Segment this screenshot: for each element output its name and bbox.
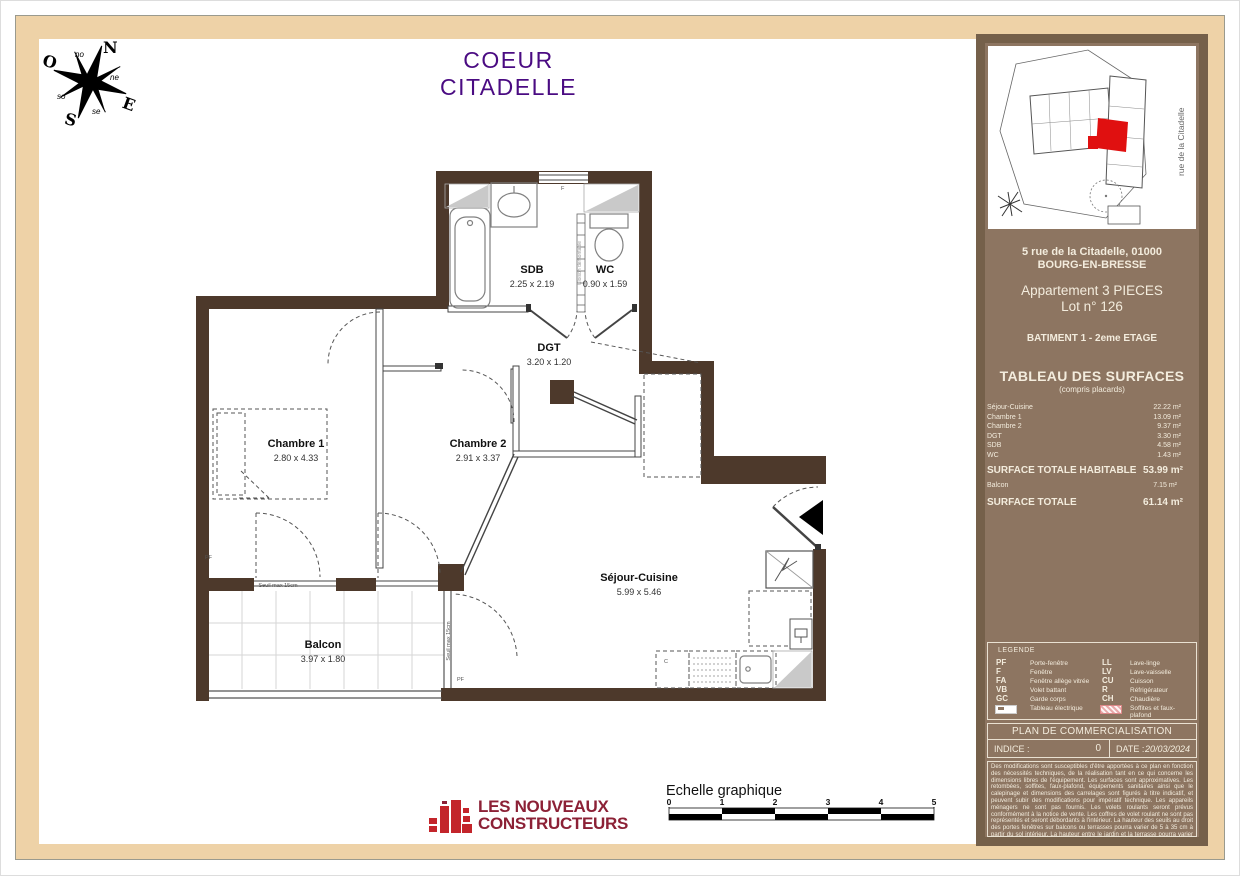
street-name: rue de la Citadelle — [1176, 107, 1186, 176]
frame-band-left — [16, 16, 39, 859]
surface-value: 13.09 m² — [1153, 413, 1181, 423]
compass-label-e: E — [120, 93, 138, 115]
total-habitable-label: SURFACE TOTALE HABITABLE — [987, 465, 1136, 476]
address-line-2: BOURG-EN-BRESSE — [985, 259, 1199, 271]
apartment-type: Appartement 3 PIECES — [985, 283, 1199, 298]
legend-label: Chaudière — [1130, 696, 1160, 703]
room-label-chambre1: Chambre 1 — [268, 438, 325, 450]
window-gap — [539, 172, 588, 183]
highlighted-lot — [1096, 118, 1128, 152]
boiler-closet — [766, 551, 813, 649]
room-dims-dgt: 3.20 x 1.20 — [527, 357, 572, 367]
compass-label-o: O — [41, 51, 59, 73]
surface-label: SDB — [987, 441, 1001, 451]
legend-label: Lave-vaisselle — [1130, 669, 1171, 676]
plan-commercialisation-banner: PLAN DE COMMERCIALISATION — [987, 723, 1197, 740]
compass-arm-e — [88, 77, 127, 98]
exterior-walls — [196, 171, 826, 701]
date-cell: DATE : 20/03/2024 — [1110, 740, 1196, 757]
washbasin-icon — [498, 193, 530, 217]
electrical-column — [550, 380, 574, 404]
legend-label: Lave-linge — [1130, 660, 1160, 667]
floor-plan: SDB 2.25 x 2.19 WC 0.90 x 1.59 DGT 3.20 … — [181, 159, 841, 715]
legend-label: Fenêtre — [1030, 669, 1052, 676]
room-label-wc: WC — [596, 264, 614, 276]
seuil-note-h: Seuil max 15cm — [258, 583, 298, 589]
surface-row: Séjour-Cuisine 22.22 m² — [987, 403, 1181, 413]
legend-abbr: R — [1102, 685, 1108, 694]
legend-label: Volet battant — [1030, 687, 1066, 694]
dishwasher-outline — [689, 651, 736, 688]
legend-label: Cuisson — [1130, 678, 1153, 685]
indice-date-row: INDICE : 0 DATE : 20/03/2024 — [987, 740, 1197, 758]
compass-label-se: se — [92, 107, 101, 116]
room-label-sdb: SDB — [520, 264, 543, 276]
page-title: COEUR CITADELLE — [396, 47, 621, 101]
legend-abbr: F — [996, 667, 1001, 676]
toilet-tank — [590, 214, 628, 228]
building-3-outline — [1108, 206, 1140, 224]
legend-label: Garde corps — [1030, 696, 1066, 703]
scale-tick: 5 — [932, 797, 937, 807]
total-value: 61.14 m² — [1143, 497, 1183, 508]
legend-abbr: LV — [1102, 667, 1112, 676]
compass-label-no: no — [75, 50, 84, 59]
legend-abbr: CH — [1102, 694, 1114, 703]
room-labels: SDB 2.25 x 2.19 WC 0.90 x 1.59 DGT 3.20 … — [268, 264, 678, 664]
surface-row: Chambre 2 9.37 m² — [987, 422, 1181, 432]
date-label: DATE : — [1116, 744, 1144, 754]
indice-cell: INDICE : 0 — [988, 740, 1110, 757]
legend-label: Fenêtre allège vitrée — [1030, 678, 1089, 685]
indice-value: 0 — [1095, 743, 1101, 754]
te-box — [790, 619, 812, 649]
dishwasher-hatch — [693, 658, 732, 682]
legend-label: Tableau électrique — [1030, 705, 1083, 712]
door-leaves — [530, 310, 818, 548]
total-row: SURFACE TOTALE 61.14 m² — [987, 497, 1183, 508]
building-floor: BATIMENT 1 - 2eme ETAGE — [985, 333, 1199, 344]
scale-bar — [669, 807, 934, 820]
room-label-chambre2: Chambre 2 — [450, 438, 507, 450]
surface-row: Chambre 1 13.09 m² — [987, 413, 1181, 423]
room-dims-chambre1: 2.80 x 4.33 — [274, 453, 319, 463]
legend-abbr: LL — [1102, 658, 1112, 667]
legend-label: Porte-fenêtre — [1030, 660, 1068, 667]
room-dims-chambre2: 2.91 x 3.37 — [456, 453, 501, 463]
surface-label: DGT — [987, 432, 1002, 442]
compass-label-ne: ne — [110, 73, 119, 82]
interior-partitions — [376, 306, 641, 568]
diagonal-walls — [461, 392, 637, 575]
address-line-1: 5 rue de la Citadelle, 01000 — [985, 246, 1199, 258]
compass-label-so: so — [57, 92, 66, 101]
legal-disclaimer: Des modifications sont susceptibles d'êt… — [987, 761, 1197, 837]
legend-label: Réfrigérateur — [1130, 687, 1168, 694]
cloison-note: Cloison démontable — [577, 241, 583, 285]
surface-value: 3.30 m² — [1157, 432, 1181, 442]
pillow-outline — [217, 413, 245, 495]
seuil-note-v: Seuil max 15cm — [446, 621, 452, 661]
logo-line-2: CONSTRUCTEURS — [478, 815, 628, 832]
room-label-sejour: Séjour-Cuisine — [600, 572, 678, 584]
balcony-row: Balcon 7.15 m² — [987, 482, 1177, 489]
room-dims-sejour: 5.99 x 5.46 — [617, 587, 662, 597]
compass-rose: N E S O no ne se so — [37, 27, 149, 137]
pf-marker-1: PF — [205, 555, 213, 561]
surface-label: WC — [987, 451, 999, 461]
cooktop-marker: C — [664, 659, 668, 665]
legend-abbr: GC — [996, 694, 1008, 703]
info-sidebar: rue de la Citadelle 5 rue de la Citadell… — [976, 34, 1208, 846]
total-habitable-row: SURFACE TOTALE HABITABLE 53.99 m² — [987, 465, 1183, 476]
total-label: SURFACE TOTALE — [987, 497, 1077, 508]
mini-compass-icon — [998, 192, 1022, 216]
compass-label-n: N — [103, 38, 118, 57]
kitchen-sink-icon — [740, 656, 771, 683]
logo-line-1: LES NOUVEAUX — [478, 798, 628, 815]
constructor-logo-text: LES NOUVEAUX CONSTRUCTEURS — [478, 798, 628, 832]
date-value: 20/03/2024 — [1145, 744, 1190, 754]
room-dims-sdb: 2.25 x 2.19 — [510, 279, 555, 289]
room-label-balcon: Balcon — [305, 639, 342, 651]
scale-tick: 4 — [879, 797, 884, 807]
legend-label: Soffites et faux-plafond — [1130, 705, 1196, 719]
constructor-logo: LES NOUVEAUX CONSTRUCTEURS — [426, 793, 628, 837]
graphic-scale: Echelle graphique 0 1 2 3 4 5 — [663, 781, 943, 826]
toilet-icon — [595, 229, 623, 261]
room-dims-wc: 0.90 x 1.59 — [583, 279, 628, 289]
surface-value: 4.58 m² — [1157, 441, 1181, 451]
surfaces-title: TABLEAU DES SURFACES — [985, 368, 1199, 384]
scale-tick: 2 — [773, 797, 778, 807]
legend-title: LEGENDE — [998, 647, 1035, 654]
surface-label: Chambre 2 — [987, 422, 1022, 432]
plan-page: COEUR CITADELLE N E S O no ne se so — [0, 0, 1240, 876]
indice-label: INDICE : — [994, 744, 1030, 754]
site-plan-thumbnail: rue de la Citadelle — [988, 46, 1196, 229]
windows — [254, 175, 588, 586]
scale-tick: 3 — [826, 797, 831, 807]
legend-box: LEGENDE PF Porte-fenêtre F Fenêtre FA Fe… — [987, 642, 1197, 720]
balcony-value: 7.15 m² — [1153, 482, 1177, 489]
surfaces-subtitle: (compris placards) — [985, 385, 1199, 394]
scale-tick: 0 — [667, 797, 672, 807]
legend-abbr: CU — [1102, 676, 1114, 685]
closet-outline — [644, 374, 701, 477]
compass-label-s: S — [63, 109, 79, 130]
surface-label: Séjour-Cuisine — [987, 403, 1033, 413]
room-label-dgt: DGT — [537, 342, 561, 354]
f-marker: F — [561, 186, 565, 192]
surface-row: WC 1.43 m² — [987, 451, 1181, 461]
fixtures — [450, 183, 771, 683]
tableau-electrique-icon — [995, 705, 1017, 714]
lot-number: Lot n° 126 — [985, 299, 1199, 314]
surface-value: 1.43 m² — [1157, 451, 1181, 461]
entrance-arrow-icon — [799, 500, 823, 535]
legend-abbr: PF — [996, 658, 1006, 667]
soffites-hatch-icon — [1100, 705, 1122, 714]
surface-value: 9.37 m² — [1157, 422, 1181, 432]
legend-abbr: VB — [996, 685, 1007, 694]
compass-arm-o — [52, 66, 91, 87]
surface-label: Chambre 1 — [987, 413, 1022, 423]
cooktop-outline — [656, 651, 689, 688]
scale-tick: 1 — [720, 797, 725, 807]
soffit-boxes — [445, 184, 812, 688]
surface-row: DGT 3.30 m² — [987, 432, 1181, 442]
surface-value: 22.22 m² — [1153, 403, 1181, 413]
frame-band-bottom — [16, 844, 1224, 859]
pf-marker-2: PF — [457, 677, 465, 683]
total-habitable-value: 53.99 m² — [1143, 465, 1183, 476]
balcony-label: Balcon — [987, 482, 1008, 489]
constructor-logo-icon — [426, 793, 472, 837]
room-dims-balcon: 3.97 x 1.80 — [301, 654, 346, 664]
legend-abbr: FA — [996, 676, 1006, 685]
surface-row: SDB 4.58 m² — [987, 441, 1181, 451]
